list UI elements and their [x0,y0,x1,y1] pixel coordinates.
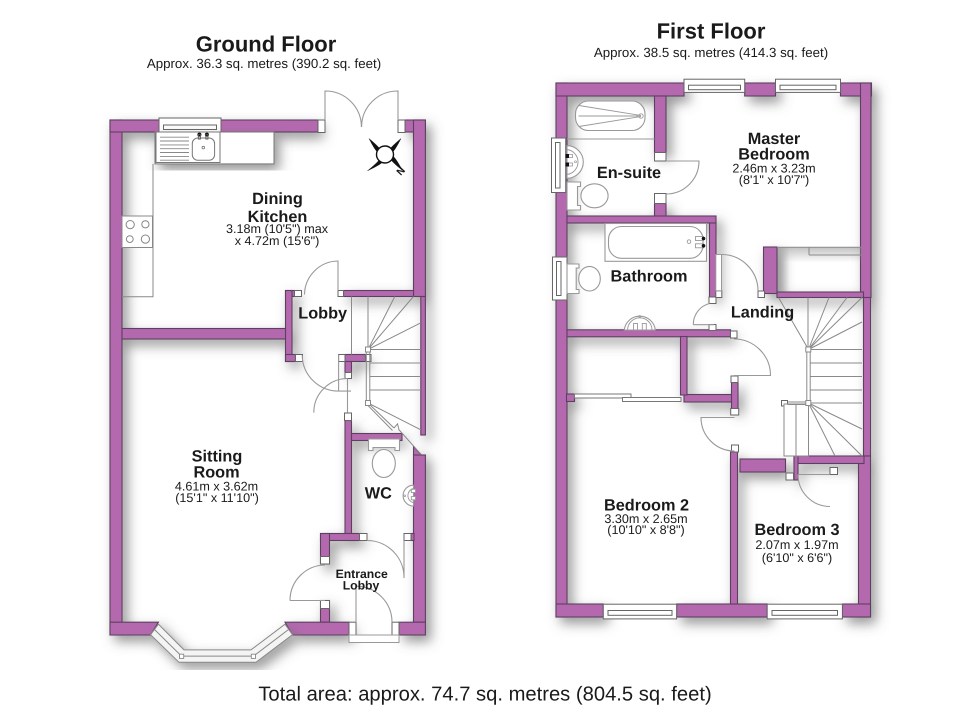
svg-text:Dining: Dining [252,190,303,208]
svg-text:Bedroom 3: Bedroom 3 [754,521,839,539]
svg-text:x 4.72m (15'6"): x 4.72m (15'6") [235,234,320,248]
svg-text:Approx. 36.3 sq. metres (390.2: Approx. 36.3 sq. metres (390.2 sq. feet) [147,56,381,71]
svg-text:(10'10" x 8'8"): (10'10" x 8'8") [607,523,684,537]
svg-text:(6'10" x 6'6"): (6'10" x 6'6") [762,551,832,565]
svg-text:Bathroom: Bathroom [611,268,688,286]
svg-text:Landing: Landing [731,304,794,322]
svg-text:Total area: approx. 74.7 sq. m: Total area: approx. 74.7 sq. metres (804… [258,684,711,706]
svg-text:Approx. 38.5 sq. metres (414.3: Approx. 38.5 sq. metres (414.3 sq. feet) [594,45,828,60]
svg-text:2.07m x 1.97m: 2.07m x 1.97m [755,538,838,552]
svg-text:N: N [395,165,408,178]
svg-text:First Floor: First Floor [657,19,766,44]
svg-text:Lobby: Lobby [298,305,347,323]
svg-text:(15'1" x 11'10"): (15'1" x 11'10") [175,491,259,505]
svg-text:WC: WC [365,485,392,503]
svg-text:En-suite: En-suite [597,164,661,182]
svg-text:(8'1" x 10'7"): (8'1" x 10'7") [739,173,809,187]
svg-text:Ground Floor: Ground Floor [196,32,337,57]
svg-text:Lobby: Lobby [343,579,380,593]
